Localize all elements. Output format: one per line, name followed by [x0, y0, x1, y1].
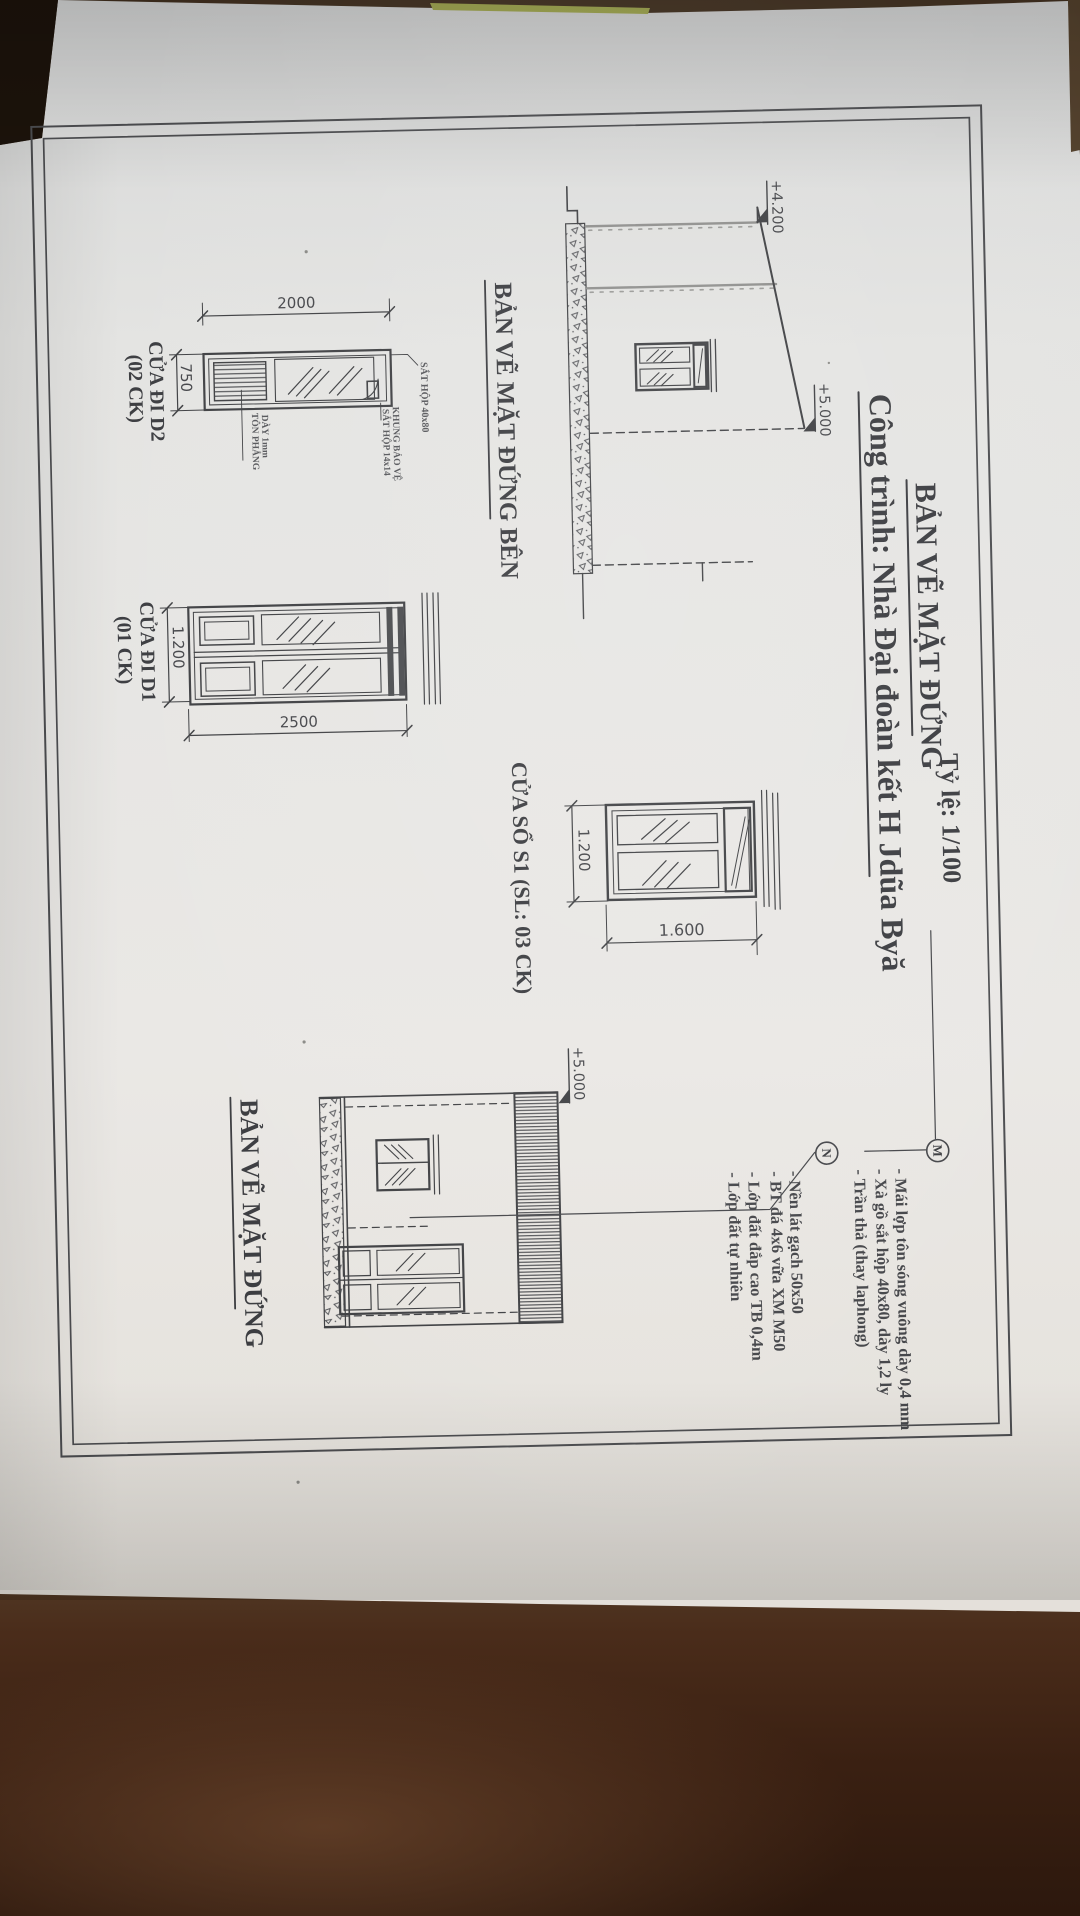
light-sheen [0, 0, 1080, 1916]
blueprint-photo-canvas: BẢN VẼ MẶT ĐỨNG Tỷ lệ: 1/100 Công trình:… [0, 0, 1080, 1916]
photo-of-blueprint: BẢN VẼ MẶT ĐỨNG Tỷ lệ: 1/100 Công trình:… [0, 0, 1080, 1916]
